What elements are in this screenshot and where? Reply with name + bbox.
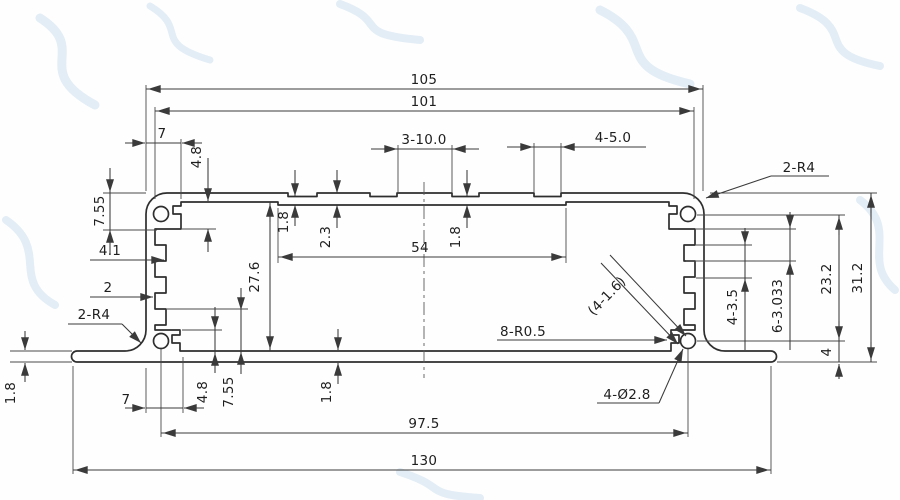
dim-101-label: 101 (411, 94, 438, 110)
dim-wall-thk: 2 (90, 280, 153, 297)
dim-8-r0-5-label: 8-R0.5 (500, 324, 546, 340)
dim-roof-thk-recess-mid: 1.8 (448, 170, 467, 248)
dim-4-1-label: 4.1 (99, 243, 121, 259)
dim-130-label: 130 (411, 453, 438, 469)
dim-4-3-5-label: 4-3.5 (725, 289, 741, 325)
dim-ledge-step-top: 4.8 (189, 146, 208, 252)
dim-54-label: 54 (411, 240, 429, 256)
drawing-canvas: 105 101 7 3-10.0 4-5.0 2-R4 7.55 4. (0, 0, 900, 500)
dim-fillet-note: 8-R0.5 (497, 324, 667, 340)
dim-roof-thk-recess-left: 1.8 (276, 170, 295, 233)
dim-97-5-label: 97.5 (408, 416, 439, 432)
dim-2-3-label: 2.3 (318, 226, 334, 248)
dim-corner-radius-top: 2-R4 (706, 160, 829, 198)
dim-6-3-033-label: 6-3.033 (770, 279, 786, 333)
dim-27-6-label: 27.6 (247, 261, 263, 292)
dim-31-2-label: 31.2 (850, 262, 866, 293)
watermark (6, 4, 895, 498)
dim-inner-width: 101 (155, 94, 694, 111)
dim-2r4-bottom-label: 2-R4 (78, 307, 111, 323)
dim-2r4-top-label: 2-R4 (783, 160, 816, 176)
dim-105-label: 105 (411, 72, 438, 88)
dim-ledge-step-bottom: 4.8 (195, 307, 215, 403)
profile-drawing: 105 101 7 3-10.0 4-5.0 2-R4 7.55 4. (0, 0, 900, 500)
dim-1-8-flange-label: 1.8 (3, 382, 19, 404)
dim-boss-offset: 4-3.5 (725, 228, 745, 350)
dim-4-o2-8-label: 4-Ø2.8 (603, 387, 650, 403)
dim-4-1-6-label: (4-1.6) (585, 274, 630, 319)
dim-boss-depth-bottom: 7.55 (221, 288, 241, 408)
dim-screw-holes: 4-Ø2.8 (597, 349, 683, 403)
dim-ledge-width-top: 7 (125, 126, 202, 143)
dim-4-8-bottom-label: 4.8 (195, 381, 211, 403)
dim-base-thk: 1.8 (319, 329, 338, 403)
dim-7-55-top-label: 7.55 (92, 195, 108, 226)
dim-4-8-top-label: 4.8 (189, 146, 205, 168)
dim-23-2-label: 23.2 (819, 263, 835, 294)
dim-pad-width: 3-10.0 (371, 132, 479, 149)
screw-port-top-right (681, 207, 696, 222)
dim-hole-span-h: 97.5 (161, 416, 688, 433)
dim-1-8-base-label: 1.8 (319, 381, 335, 403)
dim-serration-pitch: 6-3.033 (770, 212, 790, 350)
dim-7-top-label: 7 (158, 126, 167, 142)
dim-hole-to-base: 4 (819, 341, 839, 379)
dim-groove-depth: 4.1 (90, 243, 164, 260)
dim-inner-height: 27.6 (247, 202, 270, 351)
dim-3-10-label: 3-10.0 (401, 132, 446, 148)
dim-overall-width-flange: 130 (73, 453, 771, 470)
dim-1-8-roof-left-label: 1.8 (276, 211, 292, 233)
dim-flange-thk: 1.8 (3, 331, 25, 404)
dim-slot-width: 4-5.0 (507, 130, 646, 147)
profile (72, 182, 777, 378)
dim-ledge-width-bottom: 7 (122, 392, 204, 408)
screw-port-bottom-right (681, 334, 696, 349)
dim-1-8-roof-mid-label: 1.8 (448, 226, 464, 248)
dim-hole-span-v: 23.2 (819, 215, 839, 341)
dim-2-label: 2 (104, 280, 113, 296)
dim-7-bottom-label: 7 (122, 392, 131, 408)
dim-7-55-bottom-label: 7.55 (221, 376, 237, 407)
screw-port-top-left (154, 207, 169, 222)
dim-roof-thk-mid: 2.3 (318, 170, 337, 248)
dim-boss-depth-top: 7.55 (92, 168, 110, 254)
dim-overall-width: 105 (146, 72, 703, 89)
screw-port-bottom-left (154, 334, 169, 349)
dim-4-label: 4 (819, 348, 835, 357)
dim-overall-height: 31.2 (850, 193, 871, 362)
dim-4-5-label: 4-5.0 (595, 130, 631, 146)
dim-corner-radius-bottom: 2-R4 (68, 307, 141, 343)
